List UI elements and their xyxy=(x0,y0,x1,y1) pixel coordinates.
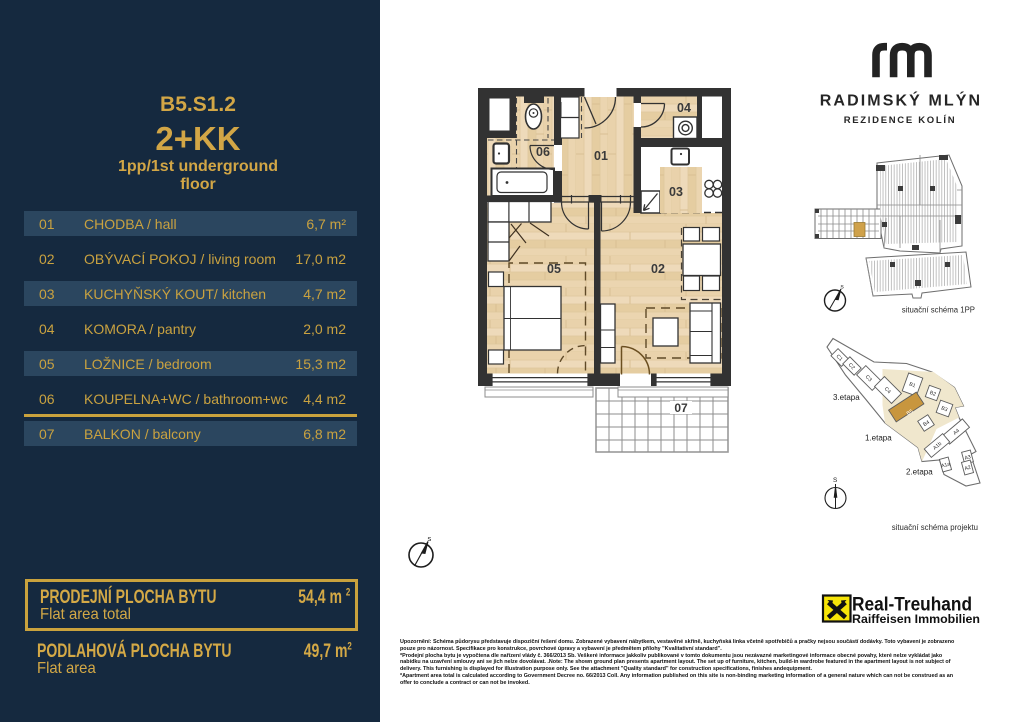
svg-text:2.etapa: 2.etapa xyxy=(906,468,933,477)
svg-text:3.etapa: 3.etapa xyxy=(833,393,860,402)
svg-text:07: 07 xyxy=(674,401,688,415)
svg-text:Raiffeisen Immobilien: Raiffeisen Immobilien xyxy=(852,614,980,626)
svg-text:05: 05 xyxy=(547,262,561,276)
svg-text:RADIMSKÝ MLÝN: RADIMSKÝ MLÝN xyxy=(820,91,982,110)
svg-text:situační schéma 1PP: situační schéma 1PP xyxy=(902,306,975,315)
svg-text:04: 04 xyxy=(677,101,691,115)
svg-text:s: s xyxy=(428,534,432,543)
svg-text:01: 01 xyxy=(594,149,608,163)
svg-text:situační schéma projektu: situační schéma projektu xyxy=(892,523,978,532)
svg-text:REZIDENCE KOLÍN: REZIDENCE KOLÍN xyxy=(844,115,957,126)
svg-text:s: s xyxy=(841,284,845,291)
svg-text:06: 06 xyxy=(536,145,550,159)
svg-text:Real-Treuhand: Real-Treuhand xyxy=(852,594,972,616)
svg-text:03: 03 xyxy=(669,185,683,199)
svg-text:S: S xyxy=(833,477,838,484)
svg-text:02: 02 xyxy=(651,262,665,276)
svg-text:1.etapa: 1.etapa xyxy=(865,434,892,443)
